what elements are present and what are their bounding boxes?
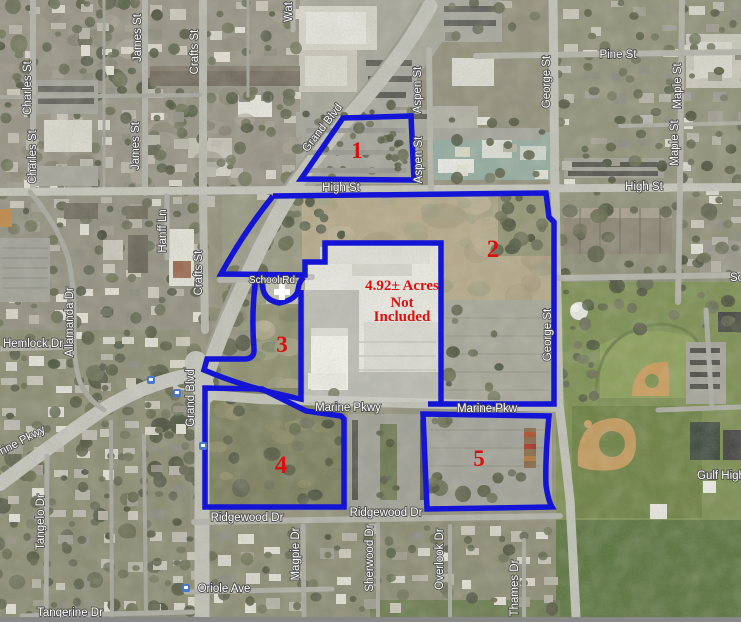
- svg-text:5: 5: [473, 446, 485, 471]
- svg-text:Wat: Wat: [283, 1, 295, 22]
- svg-text:High St: High St: [322, 182, 361, 194]
- svg-text:Aspen St: Aspen St: [412, 66, 424, 113]
- svg-text:George St: George St: [541, 55, 553, 108]
- svg-text:Grand Blvd: Grand Blvd: [185, 369, 197, 427]
- svg-text:Gulf High: Gulf High: [697, 470, 741, 482]
- svg-text:Sherwood Dr: Sherwood Dr: [364, 524, 376, 591]
- svg-text:4.92± Acres: 4.92± Acres: [365, 278, 439, 294]
- svg-text:Marine Pkwy: Marine Pkwy: [315, 402, 381, 414]
- svg-text:School Rd: School Rd: [249, 275, 295, 286]
- svg-text:Overlook Dr: Overlook Dr: [434, 528, 446, 590]
- svg-text:Thames Dr: Thames Dr: [509, 559, 521, 616]
- svg-text:Oriole Ave: Oriole Ave: [198, 583, 251, 595]
- svg-text:Charles St: Charles St: [22, 60, 34, 114]
- svg-text:Allamanda Dr: Allamanda Dr: [64, 287, 76, 357]
- svg-text:Magpie Dr: Magpie Dr: [290, 527, 302, 580]
- svg-text:George St: George St: [542, 308, 554, 361]
- svg-text:Sc: Sc: [730, 272, 741, 284]
- svg-text:Crafts St: Crafts St: [193, 250, 205, 296]
- svg-text:2: 2: [487, 236, 500, 263]
- svg-text:1: 1: [351, 138, 363, 163]
- svg-text:Marine Pkw: Marine Pkw: [457, 403, 518, 415]
- svg-text:Hanff Ln: Hanff Ln: [157, 209, 169, 252]
- svg-text:4: 4: [275, 452, 288, 479]
- svg-text:Maple St: Maple St: [672, 63, 684, 109]
- svg-text:Ridgewood Dr: Ridgewood Dr: [350, 507, 423, 519]
- svg-text:High St: High St: [625, 181, 664, 193]
- svg-text:Crafts St: Crafts St: [189, 29, 201, 75]
- svg-text:Hemlock Dr: Hemlock Dr: [3, 338, 63, 350]
- svg-text:Included: Included: [374, 309, 431, 325]
- svg-text:James St: James St: [130, 121, 142, 170]
- svg-text:Aspen St: Aspen St: [413, 136, 425, 183]
- svg-text:3: 3: [276, 332, 288, 357]
- svg-text:Ridgewood Dr: Ridgewood Dr: [211, 512, 284, 524]
- svg-text:Maple St: Maple St: [669, 120, 681, 166]
- svg-text:James St: James St: [132, 13, 144, 62]
- svg-text:Pine St: Pine St: [599, 49, 637, 61]
- svg-text:Tangerine Dr: Tangerine Dr: [37, 607, 103, 617]
- svg-text:Tangelo Dr: Tangelo Dr: [35, 494, 47, 550]
- svg-text:Charles St: Charles St: [27, 129, 39, 183]
